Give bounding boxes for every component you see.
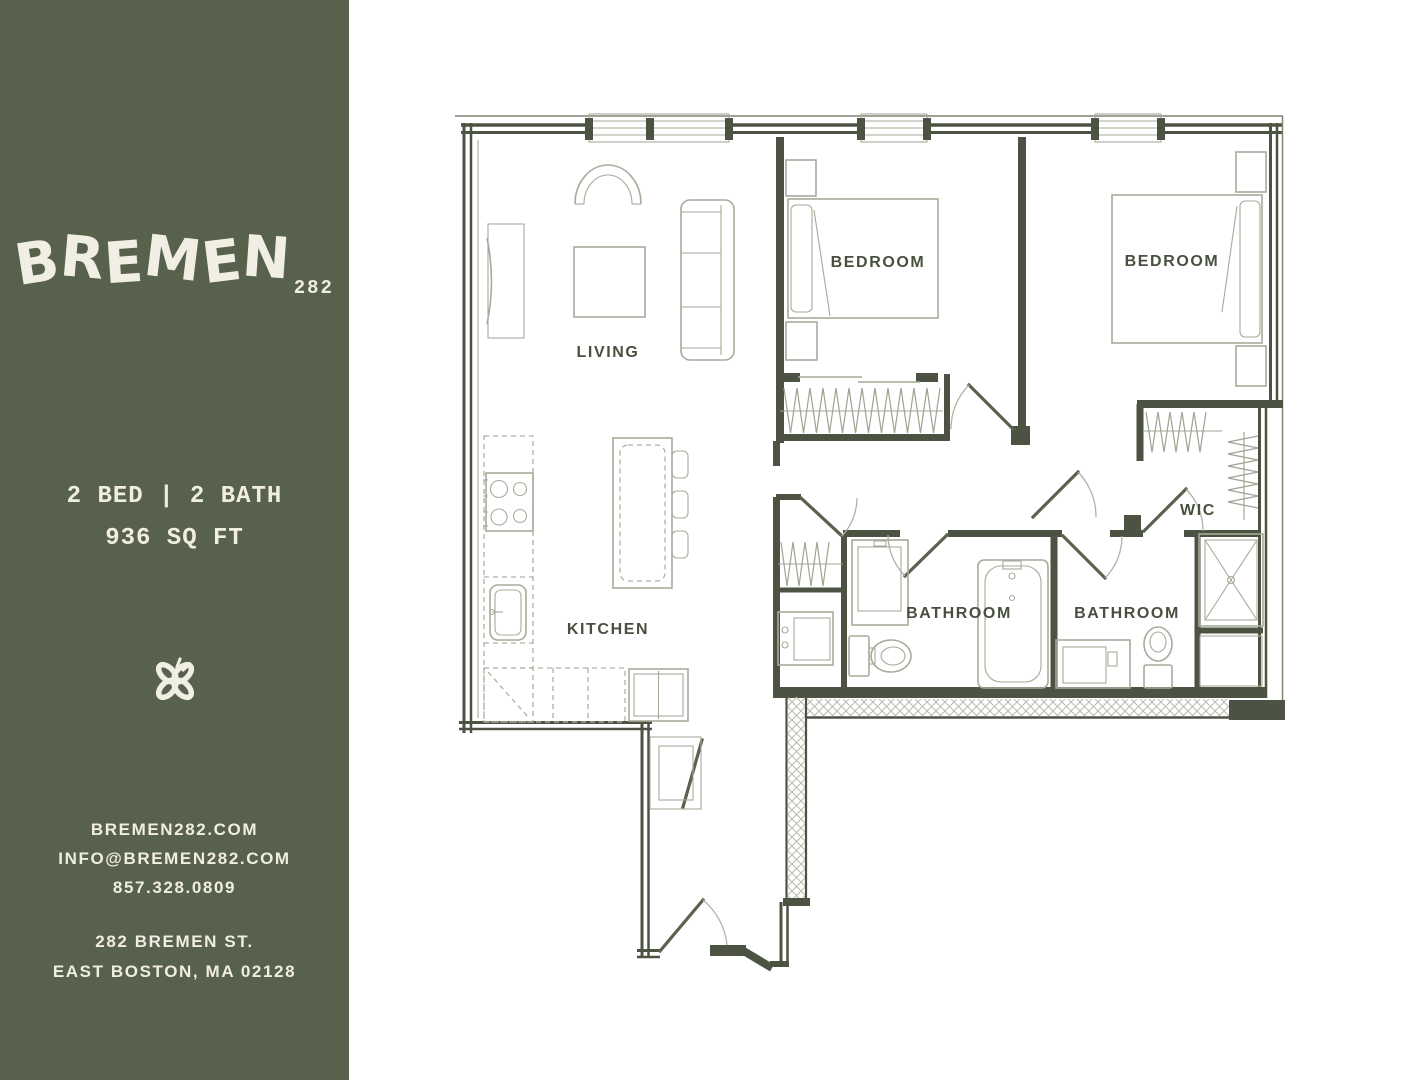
- kitchen-counter-left: [484, 436, 533, 722]
- bathtub-icon: [978, 560, 1048, 688]
- living-furniture: [487, 165, 734, 360]
- fridge-icon: [629, 669, 688, 721]
- vanity-icon: [852, 540, 908, 625]
- shower-icon: [1199, 534, 1263, 626]
- phone-text: 857.328.0809: [0, 873, 349, 902]
- entry-door: [660, 900, 727, 951]
- bathroom1-inner-door: [888, 535, 947, 576]
- vanity-icon: [1056, 640, 1130, 688]
- bathroom2-label: BATHROOM: [1074, 605, 1180, 622]
- exterior-walls: [455, 116, 1283, 968]
- nightstand-icon: [1236, 152, 1266, 192]
- contact-block: BREMEN282.COM INFO@BREMEN282.COM 857.328…: [0, 815, 349, 902]
- stool-icon: [672, 531, 688, 558]
- entry-closet-icon: [650, 737, 701, 809]
- bedroom2-label: BEDROOM: [1125, 253, 1220, 270]
- logo-letter: R: [57, 223, 107, 293]
- nightstand-icon: [786, 322, 817, 360]
- logo-letter: M: [141, 223, 206, 296]
- brand-sidebar: BREMEN282 2 BED | 2 BATH 936 SQ FT BREME…: [0, 0, 349, 1080]
- bathroom1-label: BATHROOM: [906, 605, 1012, 622]
- website-text: BREMEN282.COM: [0, 815, 349, 844]
- island-icon: [613, 438, 688, 588]
- beds-baths-text: 2 BED | 2 BATH: [0, 476, 349, 518]
- address-line2: EAST BOSTON, MA 02128: [0, 957, 349, 987]
- bedroom1-label: BEDROOM: [831, 254, 926, 271]
- wic-right-hatch: [1228, 436, 1258, 508]
- windows: [585, 114, 1165, 142]
- stool-icon: [672, 491, 688, 518]
- kitchen-counter-bottom: [484, 668, 625, 722]
- unit-specs: 2 BED | 2 BATH 936 SQ FT: [0, 476, 349, 560]
- coffee-table-icon: [574, 247, 645, 317]
- stove-icon: [483, 473, 533, 531]
- address-line1: 282 BREMEN ST.: [0, 927, 349, 957]
- email-text: INFO@BREMEN282.COM: [0, 844, 349, 873]
- interior-walls: [773, 137, 1283, 698]
- kitchen-label: KITCHEN: [567, 621, 649, 638]
- room-labels: LIVING BEDROOM BEDROOM KITCHEN BATHROOM …: [567, 253, 1220, 638]
- nightstand-icon: [786, 160, 816, 196]
- window-bedroom1: [857, 114, 931, 142]
- flyer-page: BREMEN282 2 BED | 2 BATH 936 SQ FT BREME…: [0, 0, 1401, 1080]
- nightstand-icon: [1236, 346, 1266, 386]
- wic-label: WIC: [1180, 502, 1216, 519]
- tv-console-icon: [487, 224, 524, 338]
- logo-number: 282: [294, 277, 334, 299]
- window-bedroom2: [1091, 114, 1165, 142]
- bedroom1-door: [951, 385, 1013, 429]
- washer-dryer-icon: [778, 612, 833, 665]
- sink-icon: [490, 585, 527, 640]
- window-living: [585, 114, 733, 142]
- brand-logo: BREMEN282: [0, 228, 349, 294]
- bathroom2-door: [1063, 536, 1122, 578]
- corridor-hatch: [783, 696, 1285, 906]
- doors: [660, 385, 1203, 951]
- flower-icon: [144, 648, 206, 713]
- living-label: LIVING: [577, 344, 640, 361]
- floorplan-drawing: LIVING BEDROOM BEDROOM KITCHEN BATHROOM …: [350, 0, 1401, 1080]
- armchair-icon: [575, 165, 641, 204]
- logo-letter: N: [240, 223, 293, 292]
- logo-letter: E: [198, 227, 246, 297]
- address-block: 282 BREMEN ST. EAST BOSTON, MA 02128: [0, 927, 349, 987]
- toilet-icon: [1144, 627, 1172, 688]
- sofa-icon: [681, 200, 734, 360]
- toilet-icon: [849, 636, 911, 676]
- wic-top-hatch: [1146, 412, 1206, 452]
- stool-icon: [672, 451, 688, 478]
- bedroom2-door: [1033, 472, 1096, 517]
- area-text: 936 SQ FT: [0, 518, 349, 560]
- linen-cabinet-icon: [1200, 636, 1262, 686]
